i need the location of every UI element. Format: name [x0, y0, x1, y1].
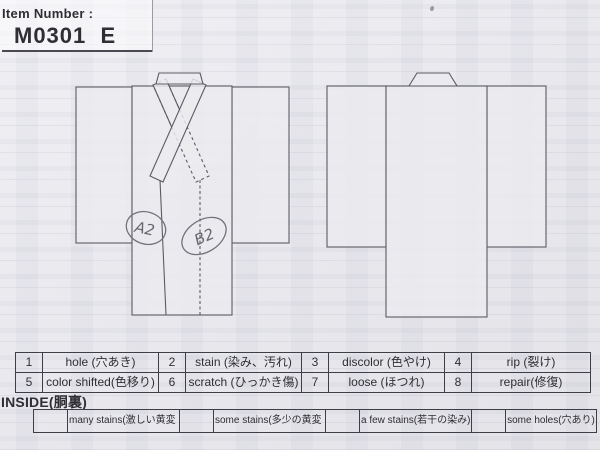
- back-body: [386, 86, 487, 317]
- defect-label: scratch (ひっかき傷): [186, 373, 302, 393]
- defect-label: hole (穴あき): [43, 353, 159, 373]
- defect-code: 3: [302, 353, 329, 373]
- inside-option-checkbox: [34, 410, 68, 433]
- inside-option-label: a few stains(若干の染み): [360, 410, 472, 433]
- inside-option-checkbox: [180, 410, 214, 433]
- defect-label: rip (裂け): [472, 353, 591, 373]
- front-left-sleeve: [76, 87, 132, 243]
- defect-table-row: 1 hole (穴あき) 2 stain (染み、汚れ) 3 discolor …: [16, 353, 591, 373]
- inside-option-label: some holes(穴あり): [506, 410, 597, 433]
- inside-option-checkbox: [472, 410, 506, 433]
- defect-code: 5: [16, 373, 43, 393]
- collar-neckband: [156, 73, 203, 84]
- inside-option-label: some stains(多少の黄変・染み): [214, 410, 326, 433]
- back-kimono-diagram: [327, 73, 546, 317]
- front-right-sleeve: [232, 87, 289, 243]
- defect-code-table: 1 hole (穴あき) 2 stain (染み、汚れ) 3 discolor …: [15, 352, 591, 393]
- front-kimono-diagram: [76, 73, 289, 315]
- defect-code: 2: [159, 353, 186, 373]
- defect-label: stain (染み、汚れ): [186, 353, 302, 373]
- defect-code: 7: [302, 373, 329, 393]
- defect-label: loose (ほつれ): [329, 373, 445, 393]
- defect-code: 6: [159, 373, 186, 393]
- defect-label: discolor (色やけ): [329, 353, 445, 373]
- defect-label: color shifted(色移り): [43, 373, 159, 393]
- defect-table-row: 5 color shifted(色移り) 6 scratch (ひっかき傷) 7…: [16, 373, 591, 393]
- inside-options-row: many stains(激しい黄変・染み) some stains(多少の黄変・…: [34, 410, 597, 433]
- back-collar-bump: [409, 73, 457, 86]
- back-right-sleeve: [487, 86, 546, 247]
- inside-option-checkbox: [326, 410, 360, 433]
- back-left-sleeve: [327, 86, 386, 247]
- defect-code: 4: [445, 353, 472, 373]
- defect-label: repair(修復): [472, 373, 591, 393]
- defect-code: 8: [445, 373, 472, 393]
- inside-options-table: many stains(激しい黄変・染み) some stains(多少の黄変・…: [33, 409, 597, 433]
- inside-option-label: many stains(激しい黄変・染み): [68, 410, 180, 433]
- defect-code: 1: [16, 353, 43, 373]
- scanned-sheet: Item Number : M0301 E: [0, 0, 600, 450]
